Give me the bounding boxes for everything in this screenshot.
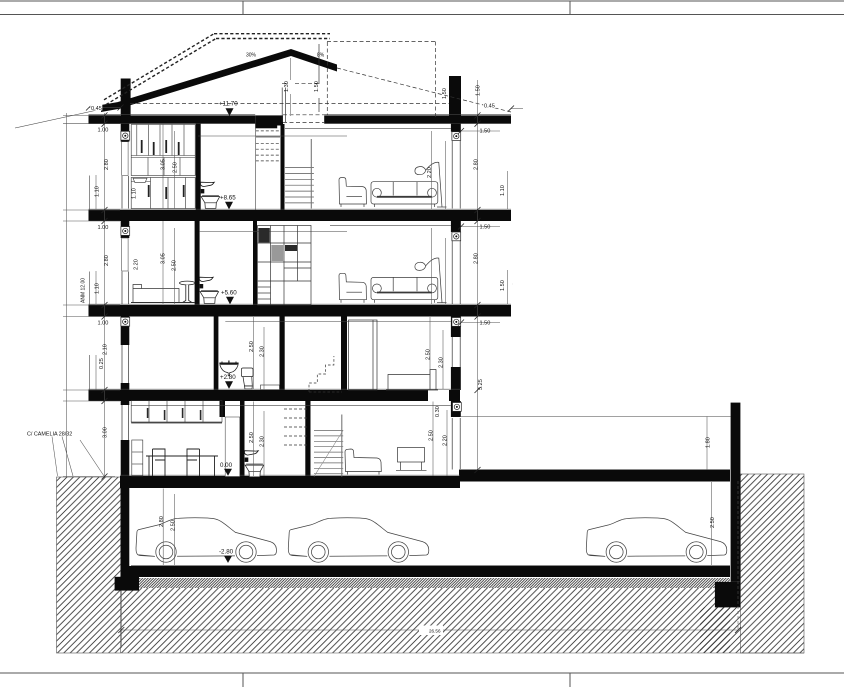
svg-text:1.50: 1.50 xyxy=(480,321,491,327)
svg-text:2.80: 2.80 xyxy=(104,159,110,170)
svg-text:2.30: 2.30 xyxy=(260,346,266,357)
svg-text:0.00: 0.00 xyxy=(220,462,233,469)
svg-text:1.00: 1.00 xyxy=(98,321,109,327)
svg-text:2.50: 2.50 xyxy=(426,349,432,360)
svg-text:1.10: 1.10 xyxy=(500,185,506,196)
svg-text:2.50: 2.50 xyxy=(249,432,255,443)
svg-text:2.80: 2.80 xyxy=(474,253,480,264)
svg-text:1.50: 1.50 xyxy=(476,85,482,96)
svg-text:C/ CAMELIA 28/32: C/ CAMELIA 28/32 xyxy=(27,432,72,438)
svg-text:1.50: 1.50 xyxy=(480,225,491,231)
svg-text:5.25: 5.25 xyxy=(478,379,484,390)
svg-text:0.45: 0.45 xyxy=(484,104,495,110)
svg-text:2.50: 2.50 xyxy=(249,341,255,352)
svg-text:30%: 30% xyxy=(246,53,257,59)
svg-text:2.10: 2.10 xyxy=(103,344,109,355)
svg-text:+5.60: +5.60 xyxy=(221,290,237,297)
svg-text:0.45: 0.45 xyxy=(91,106,102,112)
svg-text:1.30: 1.30 xyxy=(284,81,290,92)
svg-text:2.20: 2.20 xyxy=(427,167,433,178)
svg-text:+2.80: +2.80 xyxy=(220,374,236,381)
svg-text:1.50: 1.50 xyxy=(500,280,506,291)
svg-text:3.05: 3.05 xyxy=(161,253,167,264)
svg-text:1.50: 1.50 xyxy=(314,81,320,92)
svg-text:2.50: 2.50 xyxy=(710,517,716,528)
svg-text:2.50: 2.50 xyxy=(173,162,179,173)
svg-text:2.30: 2.30 xyxy=(439,357,445,368)
svg-text:0.25: 0.25 xyxy=(99,358,105,369)
svg-text:2.30: 2.30 xyxy=(260,436,266,447)
svg-text:2.50: 2.50 xyxy=(171,520,177,531)
svg-text:2.50: 2.50 xyxy=(172,260,178,271)
svg-text:1.10: 1.10 xyxy=(95,283,101,294)
svg-text:0.30: 0.30 xyxy=(435,406,441,417)
svg-text:3.00: 3.00 xyxy=(103,427,109,438)
svg-text:1.10: 1.10 xyxy=(95,186,101,197)
svg-text:2.80: 2.80 xyxy=(474,159,480,170)
svg-text:-2.80: -2.80 xyxy=(219,549,234,556)
svg-text:1.50: 1.50 xyxy=(442,88,448,99)
svg-text:3.05: 3.05 xyxy=(161,159,167,170)
svg-text:+11.70: +11.70 xyxy=(219,100,238,107)
svg-text:2.80: 2.80 xyxy=(159,516,165,527)
svg-text:2.20: 2.20 xyxy=(443,435,449,446)
svg-text:2.20: 2.20 xyxy=(134,259,140,270)
svg-text:1.10: 1.10 xyxy=(132,188,138,199)
svg-text:1.50: 1.50 xyxy=(480,129,491,135)
svg-text:8%: 8% xyxy=(317,53,325,59)
svg-text:26.56: 26.56 xyxy=(429,629,441,634)
svg-text:+8.65: +8.65 xyxy=(220,195,236,202)
svg-text:1.00: 1.00 xyxy=(98,128,109,134)
svg-text:ANM 12.00: ANM 12.00 xyxy=(81,278,87,303)
svg-text:1.00: 1.00 xyxy=(98,225,109,231)
svg-text:2.80: 2.80 xyxy=(104,255,110,266)
svg-text:2.50: 2.50 xyxy=(429,430,435,441)
svg-text:1.80: 1.80 xyxy=(706,437,712,448)
